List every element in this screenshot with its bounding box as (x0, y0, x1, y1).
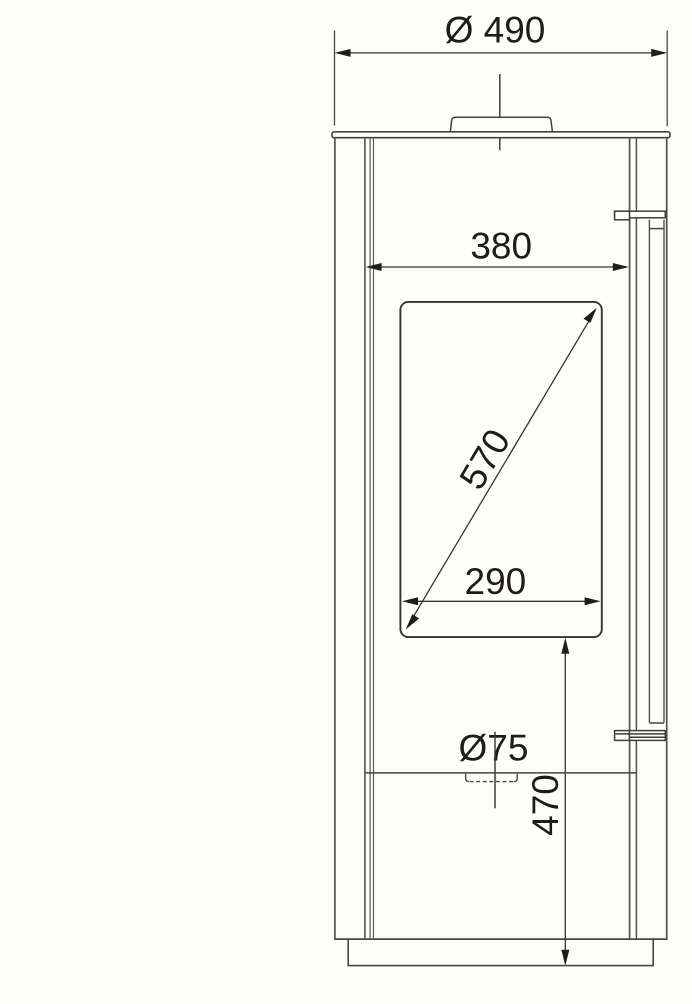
svg-text:570: 570 (451, 422, 518, 496)
svg-text:Ø 490: Ø 490 (445, 10, 546, 51)
svg-text:Ø75: Ø75 (459, 727, 529, 768)
svg-text:290: 290 (465, 561, 527, 602)
svg-text:470: 470 (525, 774, 566, 836)
svg-text:380: 380 (470, 226, 532, 267)
